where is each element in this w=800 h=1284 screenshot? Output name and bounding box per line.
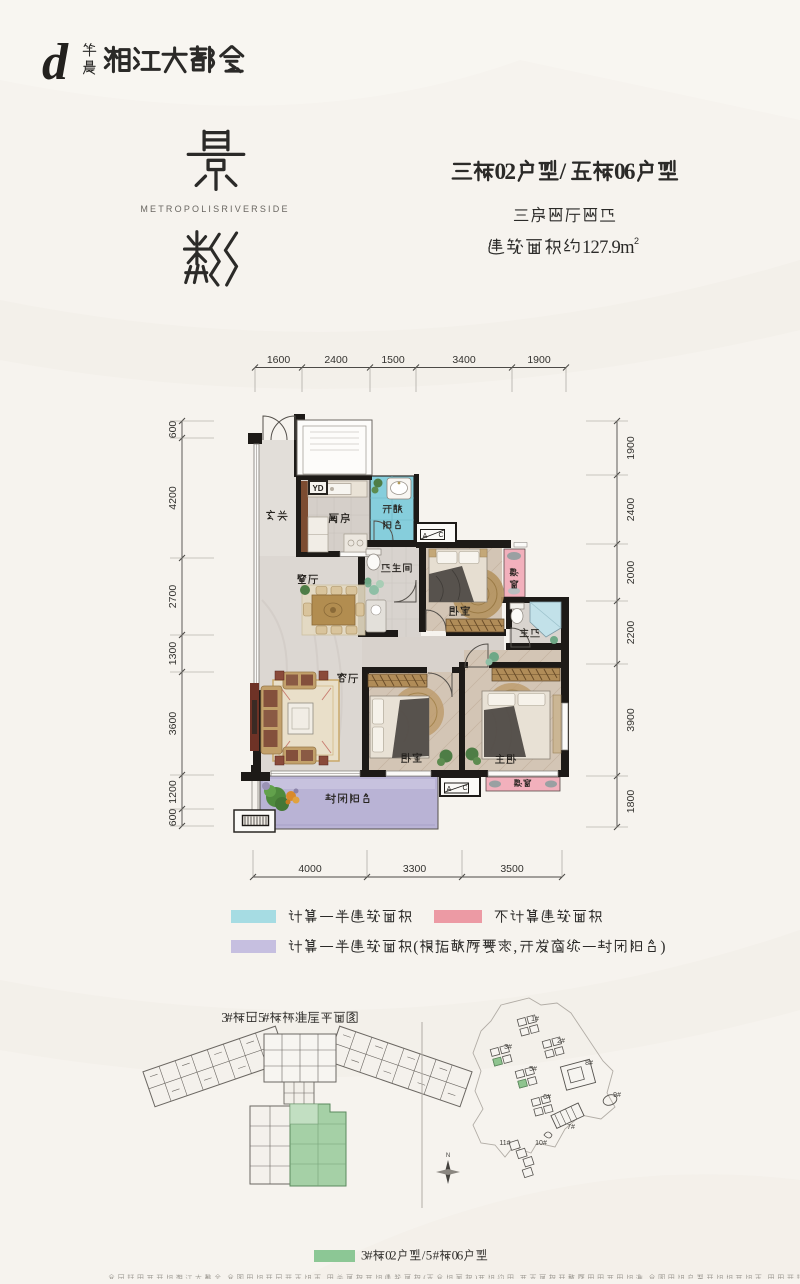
svg-text:2400: 2400 — [324, 354, 348, 366]
svg-text:02: 02 — [385, 1248, 397, 1263]
svg-text:5#: 5# — [529, 1066, 537, 1073]
svg-text:(: ( — [413, 938, 418, 955]
svg-text:METROPOLISRIVERSIDE: METROPOLISRIVERSIDE — [140, 204, 289, 214]
svg-text:8#: 8# — [585, 1060, 593, 1067]
svg-text:06: 06 — [614, 159, 636, 185]
svg-text:6#: 6# — [543, 1094, 551, 1101]
svg-text:,: , — [224, 1273, 226, 1279]
svg-text:): ) — [660, 938, 665, 955]
svg-text:1500: 1500 — [381, 354, 405, 366]
svg-text:,: , — [645, 1273, 647, 1279]
svg-text:02: 02 — [494, 159, 516, 185]
svg-text:3300: 3300 — [403, 863, 427, 875]
svg-text:d: d — [42, 34, 69, 91]
svg-text:9#: 9# — [613, 1092, 621, 1099]
svg-text:C: C — [438, 532, 443, 539]
svg-text:C: C — [462, 785, 467, 792]
svg-text:11#: 11# — [499, 1140, 510, 1147]
svg-text:4200: 4200 — [167, 486, 179, 510]
svg-text:3#: 3# — [504, 1044, 512, 1051]
svg-text:5#: 5# — [258, 1010, 270, 1025]
svg-text:600: 600 — [167, 421, 179, 439]
svg-text:2700: 2700 — [167, 585, 179, 609]
svg-text:4000: 4000 — [298, 863, 322, 875]
svg-text:3600: 3600 — [167, 712, 179, 736]
svg-text:1900: 1900 — [625, 436, 637, 460]
svg-text:A: A — [423, 533, 428, 540]
svg-text:/: / — [559, 159, 567, 185]
svg-text:,: , — [324, 1273, 326, 1279]
svg-text:2#: 2# — [557, 1038, 565, 1045]
svg-text:3900: 3900 — [625, 708, 637, 732]
svg-text:3#: 3# — [221, 1010, 233, 1025]
svg-text:A: A — [447, 786, 452, 793]
svg-text:1600: 1600 — [267, 354, 291, 366]
svg-text:N: N — [446, 1153, 450, 1159]
svg-text:3400: 3400 — [452, 354, 476, 366]
svg-text:1300: 1300 — [167, 642, 179, 666]
svg-text:YD: YD — [312, 484, 323, 493]
svg-text:3#: 3# — [361, 1248, 373, 1263]
svg-text:/5#: /5# — [422, 1248, 440, 1263]
svg-text:127.9m: 127.9m — [582, 237, 635, 258]
svg-text:1#: 1# — [531, 1016, 539, 1023]
svg-text:1900: 1900 — [527, 354, 551, 366]
svg-text:,: , — [764, 1273, 766, 1279]
svg-text:3500: 3500 — [500, 863, 524, 875]
svg-text:06: 06 — [452, 1248, 464, 1263]
svg-text:1200: 1200 — [167, 780, 179, 804]
svg-text:10#: 10# — [535, 1140, 547, 1147]
svg-text:2400: 2400 — [625, 498, 637, 522]
svg-text:7#: 7# — [567, 1124, 575, 1131]
svg-text:600: 600 — [167, 809, 179, 827]
svg-text:,: , — [513, 938, 517, 955]
svg-text:2000: 2000 — [625, 561, 637, 585]
svg-text:2: 2 — [634, 236, 639, 246]
svg-text:,: , — [517, 1273, 519, 1279]
svg-text:2200: 2200 — [625, 621, 637, 645]
svg-text:1800: 1800 — [625, 790, 637, 814]
